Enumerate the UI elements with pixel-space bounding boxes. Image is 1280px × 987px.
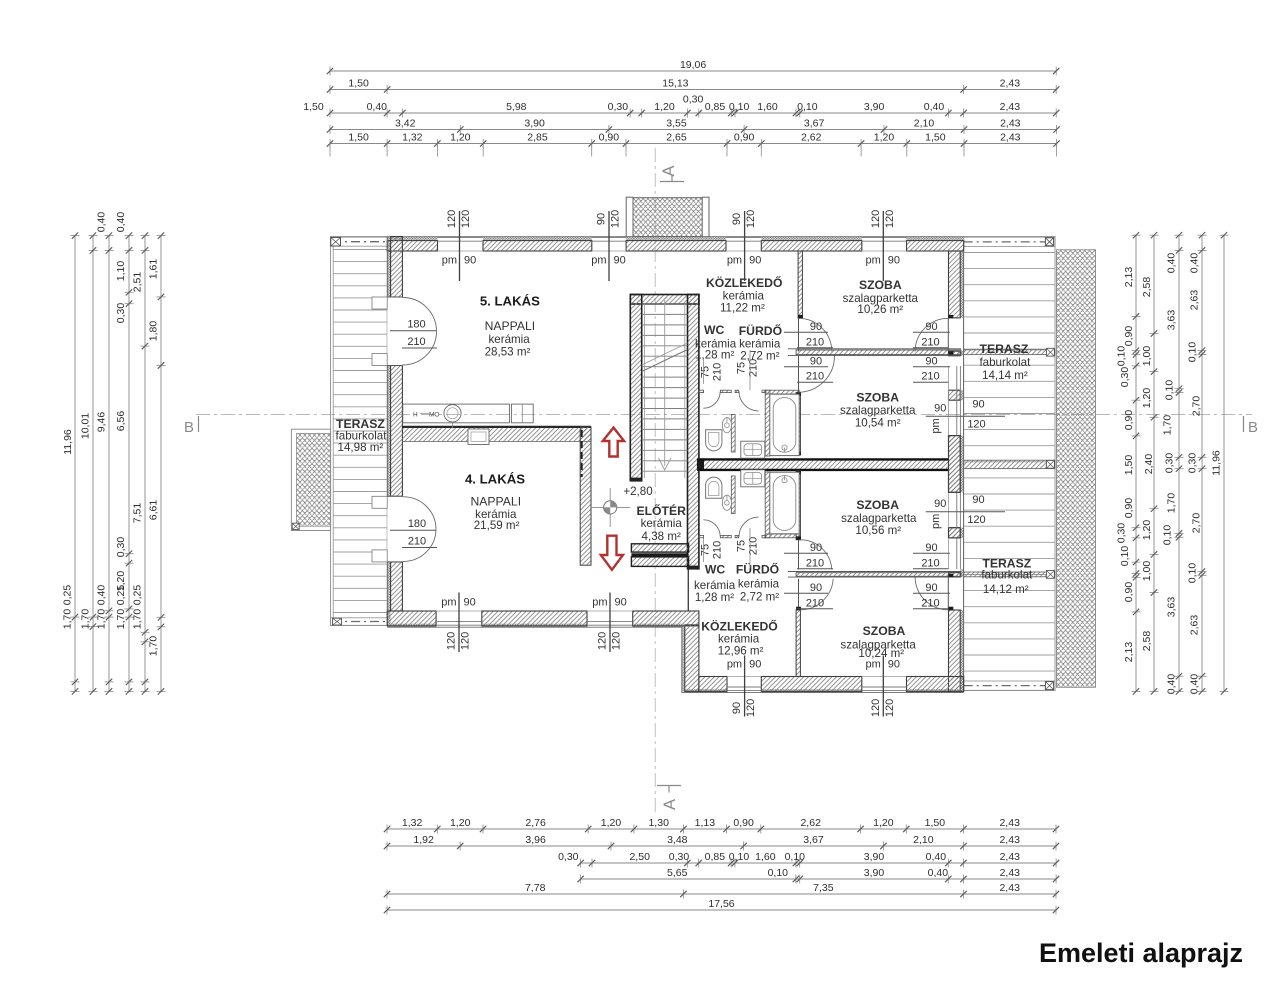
svg-text:5,65: 5,65 bbox=[667, 867, 688, 879]
svg-text:0,40: 0,40 bbox=[926, 851, 947, 863]
svg-text:1,28 m²: 1,28 m² bbox=[695, 349, 734, 362]
svg-text:0,40: 0,40 bbox=[96, 585, 108, 606]
svg-text:210: 210 bbox=[806, 597, 824, 609]
svg-text:1,32: 1,32 bbox=[402, 131, 423, 143]
svg-text:180: 180 bbox=[408, 518, 426, 530]
svg-text:0,10: 0,10 bbox=[768, 867, 789, 879]
svg-text:7,35: 7,35 bbox=[813, 882, 834, 894]
svg-text:11,96: 11,96 bbox=[1211, 450, 1223, 476]
svg-text:90: 90 bbox=[888, 659, 900, 671]
svg-text:1,70: 1,70 bbox=[1161, 415, 1173, 436]
svg-text:SZOBA: SZOBA bbox=[863, 624, 906, 638]
svg-text:90: 90 bbox=[925, 321, 937, 333]
svg-text:210: 210 bbox=[408, 535, 426, 547]
svg-text:0,85: 0,85 bbox=[705, 851, 726, 863]
svg-text:1,10: 1,10 bbox=[115, 261, 127, 282]
svg-text:0,30: 0,30 bbox=[115, 537, 127, 558]
svg-text:2,62: 2,62 bbox=[800, 817, 821, 829]
svg-text:90: 90 bbox=[749, 659, 761, 671]
svg-text:90: 90 bbox=[464, 255, 476, 267]
svg-text:0,30: 0,30 bbox=[1119, 367, 1131, 388]
svg-text:14,14 m²: 14,14 m² bbox=[982, 369, 1028, 382]
svg-text:210: 210 bbox=[921, 557, 939, 569]
svg-text:90: 90 bbox=[810, 542, 822, 554]
svg-text:1,70: 1,70 bbox=[132, 609, 144, 630]
svg-text:2,13: 2,13 bbox=[1123, 642, 1135, 663]
svg-text:0,90: 0,90 bbox=[1123, 498, 1135, 519]
svg-text:120: 120 bbox=[967, 514, 985, 526]
svg-text:90: 90 bbox=[749, 255, 761, 267]
svg-text:1,50: 1,50 bbox=[925, 131, 946, 143]
svg-text:pm: pm bbox=[866, 659, 881, 671]
svg-text:10,56 m²: 10,56 m² bbox=[855, 524, 901, 537]
svg-text:0,25: 0,25 bbox=[115, 585, 127, 606]
svg-text:2,43: 2,43 bbox=[999, 882, 1020, 894]
svg-text:0,90: 0,90 bbox=[1123, 582, 1135, 603]
svg-text:75: 75 bbox=[736, 362, 748, 374]
svg-text:1,61: 1,61 bbox=[148, 259, 160, 280]
svg-text:2,62: 2,62 bbox=[801, 131, 822, 143]
svg-text:0,30: 0,30 bbox=[1186, 453, 1198, 474]
svg-text:90: 90 bbox=[925, 542, 937, 554]
svg-text:3,63: 3,63 bbox=[1165, 310, 1177, 331]
svg-text:210: 210 bbox=[712, 541, 724, 559]
svg-text:2,43: 2,43 bbox=[1000, 851, 1021, 863]
svg-text:75: 75 bbox=[700, 544, 712, 556]
svg-text:A: A bbox=[661, 799, 679, 810]
svg-text:2,43: 2,43 bbox=[1000, 867, 1021, 879]
svg-text:12,96 m²: 12,96 m² bbox=[718, 644, 764, 657]
svg-text:0,40: 0,40 bbox=[1188, 253, 1200, 274]
svg-text:2,58: 2,58 bbox=[1141, 277, 1153, 298]
svg-text:3,55: 3,55 bbox=[666, 117, 687, 129]
svg-text:1,32: 1,32 bbox=[402, 817, 423, 829]
svg-text:0,90: 0,90 bbox=[1123, 410, 1135, 431]
svg-text:10,54 m²: 10,54 m² bbox=[855, 417, 901, 430]
svg-text:6,56: 6,56 bbox=[115, 411, 127, 432]
svg-text:0,10: 0,10 bbox=[1186, 563, 1198, 584]
svg-text:SZOBA: SZOBA bbox=[856, 498, 899, 512]
svg-text:10,26 m²: 10,26 m² bbox=[857, 303, 903, 316]
svg-text:210: 210 bbox=[921, 336, 939, 348]
svg-text:7,51: 7,51 bbox=[132, 503, 144, 524]
svg-text:120: 120 bbox=[745, 210, 757, 228]
svg-text:MO: MO bbox=[429, 412, 439, 419]
svg-text:210: 210 bbox=[921, 371, 939, 383]
svg-text:2,10: 2,10 bbox=[914, 117, 935, 129]
svg-text:1,20: 1,20 bbox=[873, 817, 894, 829]
svg-text:120: 120 bbox=[460, 632, 472, 650]
svg-text:0,90: 0,90 bbox=[734, 131, 755, 143]
svg-text:3,67: 3,67 bbox=[803, 834, 824, 846]
svg-text:0,25: 0,25 bbox=[62, 585, 74, 606]
svg-text:1,50: 1,50 bbox=[1123, 455, 1135, 476]
svg-text:1,70: 1,70 bbox=[148, 636, 160, 657]
svg-text:FÜRDŐ: FÜRDŐ bbox=[739, 323, 782, 338]
svg-text:SZOBA: SZOBA bbox=[859, 278, 902, 292]
svg-text:B: B bbox=[1248, 419, 1258, 436]
svg-text:180: 180 bbox=[407, 319, 425, 331]
svg-text:0,40: 0,40 bbox=[1165, 674, 1177, 695]
svg-text:Emeleti alaprajz: Emeleti alaprajz bbox=[1039, 938, 1243, 968]
svg-text:kerámia: kerámia bbox=[641, 517, 683, 530]
svg-text:pm: pm bbox=[727, 255, 742, 267]
svg-text:0,90: 0,90 bbox=[1123, 326, 1135, 347]
svg-text:90: 90 bbox=[615, 597, 627, 609]
svg-text:3,42: 3,42 bbox=[395, 117, 416, 129]
svg-text:2,43: 2,43 bbox=[1000, 101, 1021, 113]
svg-text:1,80: 1,80 bbox=[148, 321, 160, 342]
svg-text:1,00: 1,00 bbox=[1141, 346, 1153, 367]
svg-text:+2,80: +2,80 bbox=[623, 485, 652, 498]
svg-text:FÜRDŐ: FÜRDŐ bbox=[736, 562, 779, 577]
svg-text:1,50: 1,50 bbox=[348, 131, 369, 143]
svg-text:1,70: 1,70 bbox=[115, 609, 127, 630]
svg-text:0,40: 0,40 bbox=[928, 867, 949, 879]
svg-text:90: 90 bbox=[731, 213, 743, 225]
svg-text:1,50: 1,50 bbox=[348, 77, 369, 89]
svg-text:SZOBA: SZOBA bbox=[856, 391, 899, 405]
svg-text:1,20: 1,20 bbox=[1141, 388, 1153, 409]
svg-text:3,90: 3,90 bbox=[864, 851, 885, 863]
svg-text:1,60: 1,60 bbox=[757, 101, 778, 113]
svg-text:TERASZ: TERASZ bbox=[980, 342, 1029, 356]
svg-text:210: 210 bbox=[748, 537, 760, 555]
svg-text:1,70: 1,70 bbox=[1165, 493, 1177, 514]
svg-text:90: 90 bbox=[614, 255, 626, 267]
svg-text:120: 120 bbox=[884, 699, 896, 717]
svg-text:0,30: 0,30 bbox=[558, 851, 579, 863]
svg-text:120: 120 bbox=[446, 210, 458, 228]
svg-text:90: 90 bbox=[925, 582, 937, 594]
svg-text:0,10: 0,10 bbox=[1161, 525, 1173, 546]
svg-text:2,58: 2,58 bbox=[1141, 631, 1153, 652]
svg-text:WC: WC bbox=[704, 323, 725, 337]
svg-text:210: 210 bbox=[806, 371, 824, 383]
svg-text:0,30: 0,30 bbox=[683, 93, 704, 105]
svg-text:3,48: 3,48 bbox=[667, 834, 688, 846]
svg-text:0,10: 0,10 bbox=[785, 851, 806, 863]
svg-text:210: 210 bbox=[748, 359, 760, 377]
svg-text:pm: pm bbox=[442, 255, 457, 267]
svg-text:6,61: 6,61 bbox=[148, 500, 160, 521]
svg-text:pm: pm bbox=[441, 597, 456, 609]
svg-text:2,43: 2,43 bbox=[1000, 117, 1021, 129]
svg-text:kerámia: kerámia bbox=[738, 578, 780, 591]
svg-text:3,90: 3,90 bbox=[864, 101, 885, 113]
svg-text:1,70: 1,70 bbox=[62, 609, 74, 630]
svg-text:7,78: 7,78 bbox=[525, 882, 546, 894]
svg-text:14,12 m²: 14,12 m² bbox=[983, 583, 1029, 596]
svg-text:1,50: 1,50 bbox=[303, 101, 324, 113]
svg-text:75: 75 bbox=[736, 540, 748, 552]
svg-text:90: 90 bbox=[810, 355, 822, 367]
svg-text:90: 90 bbox=[810, 582, 822, 594]
svg-text:120: 120 bbox=[870, 699, 882, 717]
svg-text:0,90: 0,90 bbox=[599, 131, 620, 143]
svg-text:1,28 m²: 1,28 m² bbox=[695, 591, 734, 604]
svg-text:2,65: 2,65 bbox=[666, 131, 687, 143]
svg-text:1,30: 1,30 bbox=[648, 817, 669, 829]
svg-text:210: 210 bbox=[921, 597, 939, 609]
svg-text:1,50: 1,50 bbox=[925, 817, 946, 829]
svg-text:faburkolat: faburkolat bbox=[981, 569, 1033, 582]
svg-text:120: 120 bbox=[870, 210, 882, 228]
svg-text:2,43: 2,43 bbox=[999, 817, 1020, 829]
svg-text:3,67: 3,67 bbox=[804, 117, 825, 129]
svg-text:0,10: 0,10 bbox=[729, 101, 750, 113]
svg-text:0,40: 0,40 bbox=[367, 101, 388, 113]
svg-text:1,20: 1,20 bbox=[450, 131, 471, 143]
svg-text:0,90: 0,90 bbox=[733, 817, 754, 829]
svg-text:0,10: 0,10 bbox=[1186, 342, 1198, 363]
svg-text:120: 120 bbox=[610, 210, 622, 228]
svg-text:1,20: 1,20 bbox=[450, 817, 471, 829]
svg-text:szalagparketta: szalagparketta bbox=[840, 404, 916, 417]
svg-text:210: 210 bbox=[407, 336, 425, 348]
svg-text:120: 120 bbox=[611, 632, 623, 650]
svg-text:0,85: 0,85 bbox=[705, 101, 726, 113]
svg-text:3,96: 3,96 bbox=[525, 834, 546, 846]
svg-text:KÖZLEKEDŐ: KÖZLEKEDŐ bbox=[701, 618, 778, 633]
svg-text:120: 120 bbox=[745, 699, 757, 717]
svg-text:2,85: 2,85 bbox=[527, 131, 548, 143]
svg-text:3,63: 3,63 bbox=[1165, 597, 1177, 618]
svg-text:0,10: 0,10 bbox=[1119, 546, 1131, 567]
svg-text:120: 120 bbox=[446, 632, 458, 650]
svg-text:0,40: 0,40 bbox=[95, 212, 107, 233]
svg-text:faburkolat: faburkolat bbox=[979, 356, 1031, 369]
svg-text:0,30: 0,30 bbox=[608, 101, 629, 113]
svg-text:90: 90 bbox=[596, 213, 608, 225]
svg-text:pm: pm bbox=[866, 255, 881, 267]
svg-text:NAPPALI: NAPPALI bbox=[471, 495, 522, 509]
svg-text:0,10: 0,10 bbox=[797, 101, 818, 113]
svg-text:0,30: 0,30 bbox=[669, 851, 690, 863]
svg-text:1,20: 1,20 bbox=[654, 101, 675, 113]
svg-text:0,10: 0,10 bbox=[1116, 346, 1128, 367]
svg-text:H: H bbox=[413, 412, 418, 419]
svg-text:120: 120 bbox=[460, 210, 472, 228]
svg-text:17,56: 17,56 bbox=[708, 898, 734, 910]
svg-text:5. LAKÁS: 5. LAKÁS bbox=[480, 294, 540, 309]
svg-text:kerámia: kerámia bbox=[723, 289, 765, 302]
svg-text:90: 90 bbox=[888, 255, 900, 267]
svg-text:WC: WC bbox=[705, 563, 726, 577]
svg-text:75: 75 bbox=[700, 366, 712, 378]
svg-text:4. LAKÁS: 4. LAKÁS bbox=[465, 472, 525, 487]
svg-text:2,43: 2,43 bbox=[1000, 131, 1021, 143]
svg-text:3,90: 3,90 bbox=[864, 867, 885, 879]
svg-text:1,60: 1,60 bbox=[755, 851, 776, 863]
svg-text:2,51: 2,51 bbox=[132, 272, 144, 293]
svg-text:pm: pm bbox=[930, 514, 942, 529]
svg-text:5,98: 5,98 bbox=[506, 101, 527, 113]
svg-text:1,20: 1,20 bbox=[1141, 520, 1153, 541]
svg-text:9,46: 9,46 bbox=[96, 412, 108, 433]
svg-text:2,70: 2,70 bbox=[1190, 396, 1202, 417]
svg-text:ELŐTÉR: ELŐTÉR bbox=[636, 503, 686, 518]
svg-text:2,50: 2,50 bbox=[629, 851, 650, 863]
svg-text:pm: pm bbox=[591, 255, 606, 267]
svg-text:21,59 m²: 21,59 m² bbox=[474, 519, 520, 532]
svg-text:14,98 m²: 14,98 m² bbox=[338, 441, 384, 454]
svg-text:0,10: 0,10 bbox=[1163, 380, 1175, 401]
svg-text:210: 210 bbox=[712, 363, 724, 381]
svg-text:1,20: 1,20 bbox=[874, 131, 895, 143]
svg-text:szalagparketta: szalagparketta bbox=[841, 512, 917, 525]
svg-text:28,53 m²: 28,53 m² bbox=[485, 346, 531, 359]
svg-text:A: A bbox=[660, 165, 678, 176]
svg-text:1,70: 1,70 bbox=[96, 609, 108, 630]
svg-text:0,30: 0,30 bbox=[1116, 523, 1128, 544]
svg-text:90: 90 bbox=[934, 403, 946, 415]
svg-text:0,30: 0,30 bbox=[1163, 453, 1175, 474]
svg-text:15,13: 15,13 bbox=[662, 77, 688, 89]
svg-text:2,63: 2,63 bbox=[1188, 615, 1200, 636]
svg-text:2,70: 2,70 bbox=[1190, 513, 1202, 534]
svg-text:11,96: 11,96 bbox=[62, 429, 74, 455]
svg-text:120: 120 bbox=[884, 210, 896, 228]
svg-text:0,40: 0,40 bbox=[115, 212, 127, 233]
svg-text:B: B bbox=[184, 419, 194, 436]
svg-text:90: 90 bbox=[464, 597, 476, 609]
svg-text:0,10: 0,10 bbox=[729, 851, 750, 863]
svg-text:90: 90 bbox=[810, 321, 822, 333]
svg-text:90: 90 bbox=[972, 399, 984, 411]
svg-text:19,06: 19,06 bbox=[680, 59, 706, 71]
svg-text:0,40: 0,40 bbox=[1188, 674, 1200, 695]
svg-text:1,00: 1,00 bbox=[1141, 561, 1153, 582]
svg-text:11,22 m²: 11,22 m² bbox=[720, 302, 765, 315]
svg-text:90: 90 bbox=[934, 498, 946, 510]
svg-text:90: 90 bbox=[731, 702, 743, 714]
svg-text:1,13: 1,13 bbox=[695, 817, 716, 829]
svg-text:kerámia: kerámia bbox=[488, 333, 530, 346]
svg-text:90: 90 bbox=[925, 355, 937, 367]
svg-text:210: 210 bbox=[806, 557, 824, 569]
svg-text:1,92: 1,92 bbox=[413, 834, 434, 846]
svg-text:2,72 m²: 2,72 m² bbox=[740, 591, 779, 604]
svg-text:2,13: 2,13 bbox=[1123, 267, 1135, 288]
svg-text:pm: pm bbox=[727, 659, 742, 671]
svg-text:0,40: 0,40 bbox=[924, 101, 945, 113]
svg-text:210: 210 bbox=[806, 336, 824, 348]
svg-text:2,63: 2,63 bbox=[1188, 290, 1200, 311]
svg-text:120: 120 bbox=[597, 632, 609, 650]
svg-text:2,40: 2,40 bbox=[1143, 454, 1155, 475]
svg-text:1,20: 1,20 bbox=[601, 817, 622, 829]
svg-text:pm: pm bbox=[592, 597, 607, 609]
svg-text:3,90: 3,90 bbox=[524, 117, 545, 129]
svg-text:2,10: 2,10 bbox=[913, 834, 934, 846]
svg-text:0,30: 0,30 bbox=[115, 303, 127, 324]
svg-text:NAPPALI: NAPPALI bbox=[485, 319, 536, 333]
svg-text:90: 90 bbox=[972, 494, 984, 506]
svg-text:1,70: 1,70 bbox=[80, 609, 92, 630]
svg-text:120: 120 bbox=[967, 419, 985, 431]
svg-text:2,72 m²: 2,72 m² bbox=[740, 349, 779, 362]
svg-text:2,43: 2,43 bbox=[999, 834, 1020, 846]
svg-text:10,01: 10,01 bbox=[80, 413, 92, 439]
svg-text:pm: pm bbox=[930, 418, 942, 433]
svg-text:2,43: 2,43 bbox=[1000, 77, 1021, 89]
svg-text:4,38 m²: 4,38 m² bbox=[642, 530, 681, 543]
svg-text:0,40: 0,40 bbox=[1165, 253, 1177, 274]
svg-text:0,25: 0,25 bbox=[132, 585, 144, 606]
svg-text:2,76: 2,76 bbox=[525, 817, 546, 829]
